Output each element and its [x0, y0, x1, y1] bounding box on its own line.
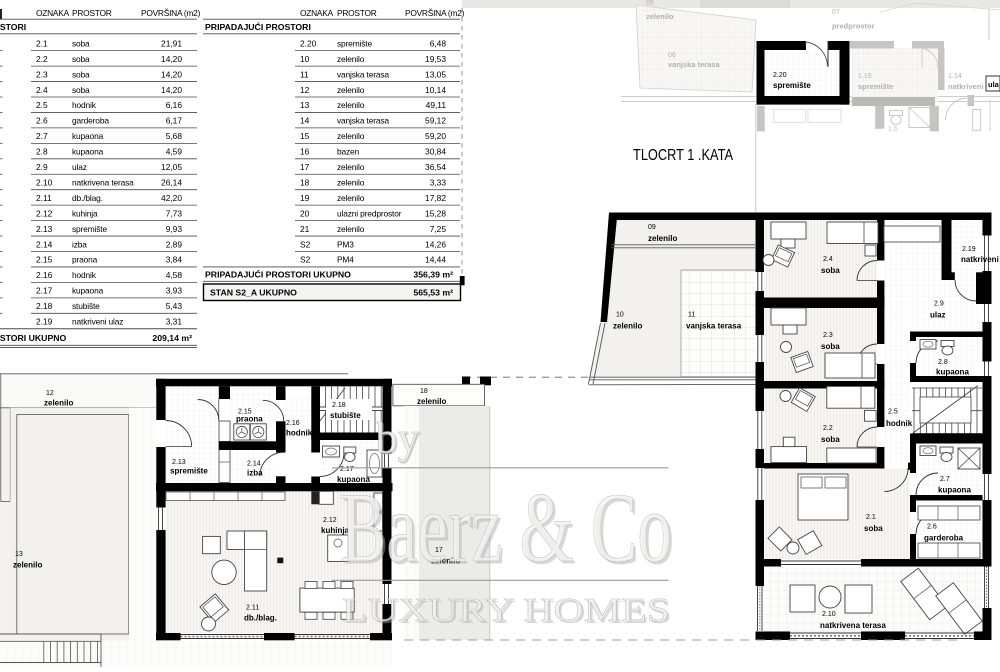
svg-text:POVRŠINA (m2): POVRŠINA (m2): [405, 8, 465, 18]
svg-text:ulaz: ulaz: [930, 311, 946, 320]
svg-text:2.7: 2.7: [940, 476, 950, 483]
svg-text:1.6: 1.6: [888, 126, 898, 133]
svg-text:2.2: 2.2: [823, 425, 833, 432]
svg-text:5,68: 5,68: [166, 131, 183, 141]
svg-text:15,28: 15,28: [425, 208, 446, 218]
svg-text:2.1: 2.1: [36, 38, 48, 48]
svg-text:spremište: spremište: [170, 467, 208, 476]
svg-text:21,91: 21,91: [161, 38, 182, 48]
svg-text:bazen: bazen: [337, 147, 360, 157]
svg-text:kupaona: kupaona: [72, 147, 104, 157]
svg-text:2.2: 2.2: [36, 54, 48, 64]
svg-text:2.14: 2.14: [247, 461, 261, 468]
svg-text:4,59: 4,59: [166, 147, 183, 157]
svg-text:2.20: 2.20: [773, 72, 787, 79]
svg-text:2.9: 2.9: [36, 162, 48, 172]
svg-text:db./blag.: db./blag.: [244, 614, 277, 623]
svg-text:vanjska terasa: vanjska terasa: [668, 60, 721, 69]
svg-text:10,14: 10,14: [425, 85, 446, 95]
svg-text:26,14: 26,14: [161, 177, 182, 187]
svg-text:by: by: [376, 414, 420, 463]
svg-text:predprostor: predprostor: [832, 22, 875, 31]
svg-text:2.10: 2.10: [36, 177, 53, 187]
svg-text:9,93: 9,93: [166, 224, 183, 234]
svg-text:2.20: 2.20: [300, 38, 317, 48]
svg-text:zelenilo: zelenilo: [648, 234, 677, 243]
svg-text:19: 19: [300, 193, 310, 203]
svg-text:vanjska terasa: vanjska terasa: [337, 69, 389, 79]
svg-text:7,25: 7,25: [430, 224, 447, 234]
svg-text:15: 15: [300, 131, 310, 141]
svg-text:14,20: 14,20: [161, 69, 182, 79]
svg-text:09: 09: [648, 224, 656, 231]
svg-text:zelenilo: zelenilo: [337, 224, 365, 234]
svg-text:17,82: 17,82: [425, 193, 446, 203]
svg-text:2.19: 2.19: [962, 246, 976, 253]
svg-text:14,26: 14,26: [425, 239, 446, 249]
svg-text:ulaz: ulaz: [72, 162, 87, 172]
svg-text:2.13: 2.13: [172, 459, 186, 466]
svg-text:14,20: 14,20: [161, 85, 182, 95]
svg-text:PROSTOR: PROSTOR: [72, 8, 112, 18]
svg-text:natkrivena terasa: natkrivena terasa: [72, 177, 134, 187]
svg-text:18: 18: [420, 388, 428, 395]
svg-text:59,20: 59,20: [425, 131, 446, 141]
svg-text:2.4: 2.4: [823, 256, 833, 263]
svg-text:zelenilo: zelenilo: [337, 54, 365, 64]
svg-text:garderoba: garderoba: [924, 534, 964, 543]
svg-text:2.8: 2.8: [36, 147, 48, 157]
svg-text:20: 20: [300, 208, 310, 218]
svg-text:praona: praona: [236, 415, 263, 424]
svg-text:kuhinja: kuhinja: [72, 208, 98, 218]
svg-text:hodnik: hodnik: [72, 270, 97, 280]
svg-text:soba: soba: [72, 85, 90, 95]
svg-text:13: 13: [300, 100, 310, 110]
svg-text:POVRŠINA (m2): POVRŠINA (m2): [141, 8, 201, 18]
svg-text:2.11: 2.11: [246, 605, 259, 612]
svg-text:zelenilo: zelenilo: [337, 193, 365, 203]
svg-text:2.16: 2.16: [286, 420, 300, 427]
svg-text:2.12: 2.12: [323, 517, 337, 524]
svg-text:vanjska terasa: vanjska terasa: [686, 322, 742, 331]
svg-text:PROSTORI: PROSTORI: [0, 22, 26, 32]
svg-text:2,89: 2,89: [166, 239, 183, 249]
svg-text:2.16: 2.16: [36, 270, 53, 280]
svg-text:spremište: spremište: [858, 82, 893, 91]
svg-text:soba: soba: [821, 435, 840, 444]
svg-text:natkriveni ulaz: natkriveni ulaz: [72, 317, 123, 327]
svg-text:06: 06: [668, 52, 676, 59]
svg-text:2.3: 2.3: [36, 69, 48, 79]
svg-text:zelenilo: zelenilo: [337, 100, 365, 110]
svg-text:07: 07: [832, 9, 840, 16]
svg-text:izba: izba: [72, 239, 87, 249]
svg-text:PRIPADAJUĆI PROSTORI UKUPNO: PRIPADAJUĆI PROSTORI UKUPNO: [205, 269, 351, 280]
svg-text:2.1: 2.1: [866, 514, 876, 521]
svg-text:soba: soba: [72, 38, 90, 48]
svg-text:zelenilo: zelenilo: [613, 322, 642, 331]
svg-text:2.12: 2.12: [36, 208, 53, 218]
svg-text:11: 11: [300, 69, 309, 79]
svg-text:S2: S2: [300, 255, 311, 265]
svg-text:1.14: 1.14: [948, 73, 962, 80]
svg-text:13,05: 13,05: [425, 69, 446, 79]
svg-text:3,93: 3,93: [166, 286, 183, 296]
svg-text:kupaona: kupaona: [936, 368, 969, 377]
svg-text:soba: soba: [72, 54, 90, 64]
svg-text:PROSTOR: PROSTOR: [337, 8, 377, 18]
svg-text:Baerz & Co: Baerz & Co: [340, 472, 672, 583]
svg-text:spremište: spremište: [773, 81, 811, 90]
svg-text:STAN S2_A UKUPNO: STAN S2_A UKUPNO: [210, 288, 297, 298]
svg-text:zelenilo: zelenilo: [337, 131, 365, 141]
svg-text:12: 12: [300, 85, 310, 95]
svg-text:kupaona: kupaona: [72, 286, 104, 296]
svg-text:zelenilo: zelenilo: [337, 85, 365, 95]
svg-text:LUXURY HOMES: LUXURY HOMES: [342, 592, 670, 629]
svg-text:10: 10: [616, 312, 624, 319]
svg-text:2.15: 2.15: [36, 255, 53, 265]
svg-text:soba: soba: [821, 342, 840, 351]
svg-text:2.6: 2.6: [36, 116, 48, 126]
svg-text:18: 18: [300, 177, 310, 187]
svg-text:zelenilo: zelenilo: [13, 561, 42, 570]
svg-text:1.15: 1.15: [858, 73, 872, 80]
svg-text:2.3: 2.3: [823, 332, 833, 339]
svg-text:2.11: 2.11: [36, 193, 52, 203]
svg-text:2.8: 2.8: [938, 359, 948, 366]
svg-text:4,58: 4,58: [166, 270, 183, 280]
svg-text:49,11: 49,11: [426, 100, 447, 110]
svg-text:19,53: 19,53: [425, 54, 446, 64]
svg-text:OZNAKA: OZNAKA: [300, 8, 334, 18]
svg-text:7,73: 7,73: [166, 208, 183, 218]
svg-text:2.4: 2.4: [36, 85, 48, 95]
svg-text:2.14: 2.14: [36, 239, 53, 249]
svg-text:hodnik: hodnik: [886, 419, 913, 428]
svg-text:13: 13: [15, 551, 23, 558]
svg-text:stubište: stubište: [330, 411, 361, 420]
svg-text:21: 21: [300, 224, 310, 234]
svg-text:6,17: 6,17: [166, 116, 183, 126]
svg-text:praona: praona: [72, 255, 98, 265]
svg-text:59,12: 59,12: [425, 116, 446, 126]
svg-text:2.5: 2.5: [888, 409, 898, 416]
svg-text:soba: soba: [72, 69, 90, 79]
svg-text:05: 05: [646, 0, 654, 7]
svg-text:natkrivena terasa: natkrivena terasa: [820, 621, 886, 630]
svg-text:2.9: 2.9: [934, 301, 944, 308]
svg-text:hodnik: hodnik: [286, 429, 313, 438]
svg-text:3,33: 3,33: [430, 177, 447, 187]
svg-text:16: 16: [300, 147, 310, 157]
svg-text:12,05: 12,05: [161, 162, 182, 172]
svg-text:spremište: spremište: [72, 224, 107, 234]
svg-text:14,44: 14,44: [425, 255, 446, 265]
svg-text:2.13: 2.13: [36, 224, 53, 234]
svg-text:hodnik: hodnik: [72, 100, 97, 110]
svg-text:11: 11: [688, 312, 695, 319]
svg-text:12: 12: [46, 390, 54, 397]
svg-text:vanjska terasa: vanjska terasa: [337, 116, 389, 126]
svg-text:natkriveni: natkriveni: [948, 82, 983, 91]
svg-text:S2: S2: [300, 239, 311, 249]
svg-text:garderoba: garderoba: [72, 116, 109, 126]
svg-text:natkriveni: natkriveni: [961, 255, 999, 264]
svg-text:3,84: 3,84: [166, 255, 183, 265]
svg-text:TLOCRT 1 .KATA: TLOCRT 1 .KATA: [633, 147, 734, 164]
svg-text:PM3: PM3: [337, 239, 354, 249]
svg-text:356,39 m²: 356,39 m²: [413, 270, 453, 280]
svg-text:2.7: 2.7: [36, 131, 48, 141]
svg-text:6,16: 6,16: [166, 100, 183, 110]
svg-text:6,48: 6,48: [430, 38, 447, 48]
svg-text:zelenilo: zelenilo: [337, 162, 365, 172]
svg-text:2.18: 2.18: [332, 402, 346, 409]
svg-text:2.18: 2.18: [36, 301, 53, 311]
svg-text:db./blag.: db./blag.: [72, 193, 103, 203]
svg-text:PROSTORI UKUPNO: PROSTORI UKUPNO: [0, 333, 67, 343]
svg-text:spremište: spremište: [337, 38, 372, 48]
svg-text:565,53 m²: 565,53 m²: [413, 288, 453, 298]
svg-text:OZNAKA: OZNAKA: [36, 8, 70, 18]
svg-text:stubište: stubište: [72, 301, 100, 311]
svg-text:5,43: 5,43: [166, 301, 183, 311]
svg-text:zelenilo: zelenilo: [44, 398, 73, 407]
svg-text:42,20: 42,20: [161, 193, 182, 203]
svg-text:2.5: 2.5: [36, 100, 48, 110]
svg-text:3,31: 3,31: [166, 317, 183, 327]
svg-text:ulazni predprostor: ulazni predprostor: [337, 208, 402, 218]
svg-text:soba: soba: [821, 266, 840, 275]
svg-text:zelenilo: zelenilo: [417, 397, 446, 406]
svg-text:kupaona: kupaona: [938, 486, 971, 495]
svg-text:17: 17: [300, 162, 310, 172]
svg-text:2.17: 2.17: [36, 286, 53, 296]
svg-text:2.19: 2.19: [36, 317, 53, 327]
svg-text:PRIPADAJUĆI PROSTORI: PRIPADAJUĆI PROSTORI: [205, 21, 311, 32]
svg-text:kupaona: kupaona: [72, 131, 104, 141]
svg-text:14: 14: [300, 116, 310, 126]
svg-text:ula: ula: [988, 80, 1000, 89]
svg-text:36,54: 36,54: [425, 162, 446, 172]
svg-text:zelenilo: zelenilo: [646, 12, 674, 21]
svg-text:209,14 m²: 209,14 m²: [152, 333, 192, 343]
svg-text:zelenilo: zelenilo: [337, 177, 365, 187]
svg-text:30,84: 30,84: [425, 147, 446, 157]
svg-text:2.6: 2.6: [927, 524, 937, 531]
svg-text:2.10: 2.10: [822, 611, 836, 618]
svg-text:14,20: 14,20: [161, 54, 182, 64]
svg-text:soba: soba: [864, 524, 883, 533]
svg-text:PM4: PM4: [337, 255, 354, 265]
svg-text:10: 10: [300, 54, 310, 64]
